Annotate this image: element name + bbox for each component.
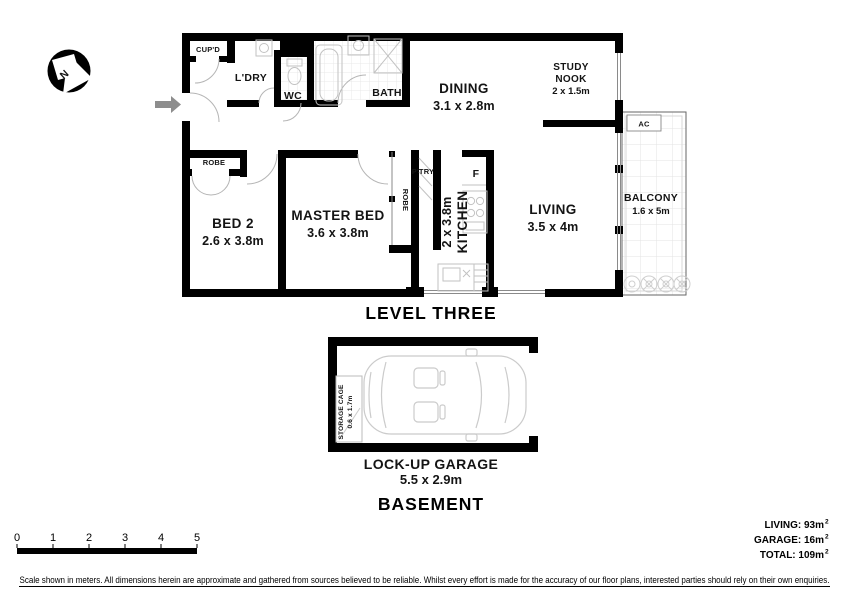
room-label-wc: WC xyxy=(284,90,302,102)
area-summary: LIVING: 93m 2 GARAGE: 16m 2 TOTAL: 109m … xyxy=(754,519,829,562)
room-label-bath: BATH xyxy=(372,87,402,99)
room-label-master: MASTER BED xyxy=(291,208,384,223)
garage-label: LOCK-UP GARAGE xyxy=(364,456,498,472)
room-label-study: STUDY xyxy=(553,62,588,73)
room-label-cupd: CUP'D xyxy=(196,45,220,54)
level3-floorplan: CUP'D L'DRY WC BATH DINING 3.1 x 2.8m ST… xyxy=(182,33,690,297)
room-label-ldry: L'DRY xyxy=(235,72,267,84)
room-label-kitchen: KITCHEN xyxy=(455,191,470,254)
label-pantry: P'TRY xyxy=(412,167,435,176)
scale-tick-3: 3 xyxy=(122,532,128,544)
storage-cage-label: STORAGE CAGE xyxy=(338,384,345,439)
label-ac: AC xyxy=(638,120,650,129)
scale-bar-rule xyxy=(17,548,197,554)
room-dims-study: 2 x 1.5m xyxy=(552,86,590,97)
washer-icon xyxy=(256,40,272,56)
disclaimer-text: Scale shown in meters. All dimensions he… xyxy=(20,575,830,585)
storage-cage: STORAGE CAGE 0.6 x 1.7m xyxy=(336,376,362,442)
room-label-nook: NOOK xyxy=(555,74,587,85)
room-label-living: LIVING xyxy=(529,202,576,217)
floorplan-svg: N xyxy=(0,0,849,600)
room-dims-bed2: 2.6 x 3.8m xyxy=(202,234,264,248)
car-top-view-icon xyxy=(364,349,526,441)
room-dims-balcony: 1.6 x 5m xyxy=(632,206,670,217)
scale-bar: 0 1 2 3 4 5 xyxy=(14,532,200,554)
room-dims-kitchen: 2 x 3.8m xyxy=(440,197,454,248)
area-garage: GARAGE: 16m xyxy=(754,535,824,546)
scale-tick-1: 1 xyxy=(50,532,56,544)
label-fridge: F xyxy=(473,168,480,180)
storage-cage-dims: 0.6 x 1.7m xyxy=(347,395,354,428)
scale-tick-5: 5 xyxy=(194,532,200,544)
floorplan-page: N xyxy=(0,0,849,600)
pantry-shelves xyxy=(419,158,432,200)
compass-north-icon: N xyxy=(48,50,93,95)
room-label-balcony: BALCONY xyxy=(624,192,678,204)
garage-dims: 5.5 x 2.9m xyxy=(400,472,462,487)
label-robe-master: ROBE xyxy=(401,189,410,211)
area-total: TOTAL: 109m xyxy=(760,550,824,561)
basement-garage: STORAGE CAGE 0.6 x 1.7m LOCK-UP GARAGE 5… xyxy=(328,337,538,487)
label-robe-bed2: ROBE xyxy=(203,158,225,167)
area-garage-sup: 2 xyxy=(825,534,829,541)
kitchen-sink-icon xyxy=(438,264,488,291)
basement-title: BASEMENT xyxy=(378,494,484,514)
area-total-sup: 2 xyxy=(825,549,829,556)
disclaimer: Scale shown in meters. All dimensions he… xyxy=(19,575,830,587)
room-dims-living: 3.5 x 4m xyxy=(528,220,579,234)
scale-tick-0: 0 xyxy=(14,532,20,544)
level3-title: LEVEL THREE xyxy=(365,303,496,323)
entry-arrow-icon xyxy=(155,96,181,113)
room-dims-master: 3.6 x 3.8m xyxy=(307,226,369,240)
room-label-dining: DINING xyxy=(439,81,489,96)
area-living: LIVING: 93m xyxy=(765,520,825,531)
area-living-sup: 2 xyxy=(825,519,829,526)
scale-tick-marks xyxy=(17,544,197,548)
room-label-bed2: BED 2 xyxy=(212,216,254,231)
scale-tick-2: 2 xyxy=(86,532,92,544)
room-dims-dining: 3.1 x 2.8m xyxy=(433,99,495,113)
scale-tick-4: 4 xyxy=(158,532,164,544)
